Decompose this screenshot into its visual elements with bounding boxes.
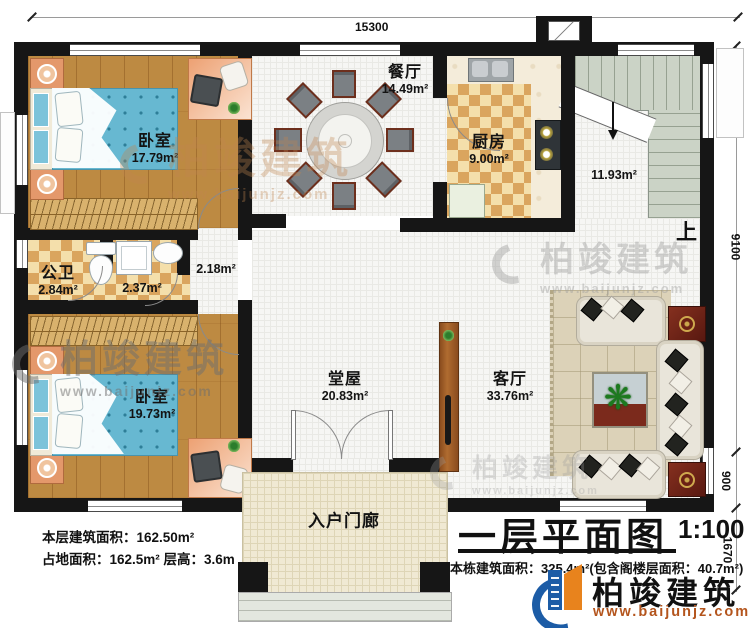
end-table [668,306,706,342]
wall-kitchen-bottom [400,218,575,232]
bed-pillow [55,127,84,163]
coffee-table-plant: ❋ [600,380,636,416]
stove-burner [540,148,553,161]
headboard-cushion [33,379,49,413]
brand-building-blue-icon [548,570,562,610]
entry-door-opening [293,458,389,472]
dimension-right-a: 9100 [728,234,742,261]
bed-pillow [54,91,83,128]
brand-logo-icon [530,562,588,622]
wall-bathroom-bottom [14,300,198,314]
stair-arrow-head [608,130,618,145]
plant-icon [228,440,240,452]
bed-pillow [55,413,84,449]
dining-chair [386,128,414,152]
porch-column [420,562,450,592]
dining-chair [332,70,356,98]
window-stairs-top [618,44,694,56]
floor-area-note: 本层建筑面积：162.50m² [42,526,194,546]
tangwu-label: 堂屋 20.83m² [322,371,369,403]
dining-table-center [338,134,352,148]
hallway-area-label: 2.18m² [196,262,236,276]
dimension-top-label: 15300 [355,20,388,34]
window-sill-left [0,112,15,214]
bathroom-sink [153,242,183,264]
shower-area-label: 2.37m² [122,281,162,295]
nightstand [30,58,64,90]
entry-door-leaf [291,410,296,460]
brand-building-orange-icon [564,564,582,610]
end-table [668,462,706,497]
stove-burner [540,126,553,139]
bedroom1-label: 卧室 17.79m² [132,133,179,165]
kitchen-label: 厨房 9.00m² [469,134,509,166]
wardrobe-bedroom2 [30,316,198,346]
kitchen-door-floor [433,98,447,182]
dining-chair [274,128,302,152]
brand-url: www.baijunjz.com [593,604,750,620]
wall-kitchen-right [561,56,575,232]
living-label: 客厅 33.76m² [487,371,534,403]
nightstand [30,168,64,200]
dining-label: 餐厅 14.49m² [382,64,429,96]
dining-chair [332,182,356,210]
nightstand [30,452,64,484]
shower-inner [121,246,147,270]
kitchen-sink-basin [492,61,508,77]
stair-right-flight [648,110,701,218]
headboard-cushion [33,130,49,164]
stair-up-label: 上 [676,216,697,246]
bathroom-label: 公卫 2.84m² [38,265,78,297]
window-stairs-right [702,64,714,138]
porch-column [238,562,268,592]
footprint-note: 占地面积：162.5m² 层高：3.6m [42,548,235,568]
desk-monitor [190,74,224,108]
plant-icon [228,102,240,114]
plant-icon [443,330,454,341]
bed-pillow [54,377,83,414]
window-bedroom2-bottom [88,500,182,512]
title-underline [458,549,676,553]
floor-plan-canvas: 15300 9100 900 1670 11.93m² 上 [0,0,750,628]
window-bedroom1-left [16,115,28,185]
window-bedroom2-left [16,370,28,445]
window-bedroom1-top [70,44,200,56]
wardrobe-bedroom1 [30,198,198,230]
desk-monitor [190,450,223,483]
entry-door-leaf [388,410,393,460]
nightstand [30,346,64,376]
toilet-tank [86,242,116,255]
kitchen-sink-basin [472,61,488,77]
bedroom2-label: 卧室 19.73m² [129,389,176,421]
stair-area-label: 11.93m² [591,168,637,182]
stair-arrow-stem [612,102,614,132]
headboard-cushion [33,93,49,127]
dimension-right-b: 900 [719,471,733,491]
tangwu-floor [252,230,447,458]
wall-kitchen-left-top [433,56,447,98]
window-sill-right [716,48,744,138]
wall-dining-stub [238,214,286,228]
porch-steps [238,592,452,622]
window-bath-left [16,240,28,268]
kitchen-fridge [449,184,485,218]
dimension-line-top [30,17,740,18]
porch-label: 入户门廊 [308,511,380,530]
scale-label: 1:100 [678,514,745,545]
window-dining-top [300,44,400,56]
porch-floor [242,472,448,594]
tv-screen [445,395,451,445]
headboard-cushion [33,416,49,450]
kitchen-flue-vent [548,21,580,41]
